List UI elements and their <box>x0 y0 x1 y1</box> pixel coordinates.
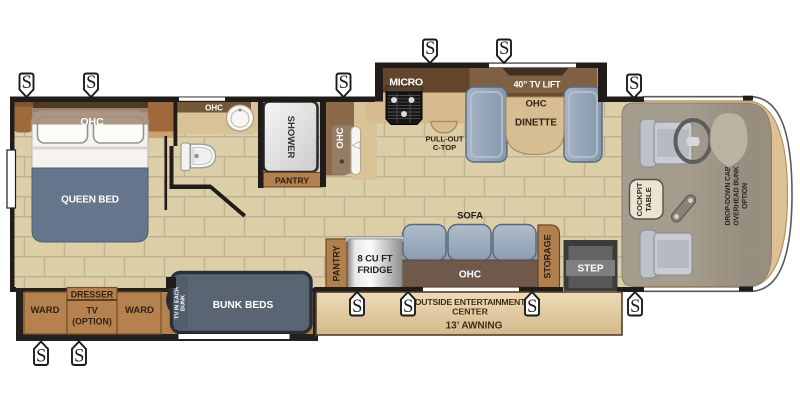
svg-text:SOFA: SOFA <box>457 211 483 222</box>
svg-text:PANTRY: PANTRY <box>275 176 309 186</box>
svg-text:OHC: OHC <box>80 116 104 128</box>
svg-text:(OPTION): (OPTION) <box>72 317 112 327</box>
svg-text:WARD: WARD <box>30 305 59 316</box>
svg-text:COCKPIT: COCKPIT <box>635 182 644 216</box>
svg-text:40” TV LIFT: 40” TV LIFT <box>514 80 562 90</box>
svg-text:BUNK: BUNK <box>181 295 187 311</box>
svg-text:DROP-DOWN CAB: DROP-DOWN CAB <box>725 166 732 225</box>
svg-text:OPTION: OPTION <box>742 183 749 209</box>
svg-text:OVERHEAD BUNK: OVERHEAD BUNK <box>734 166 741 225</box>
svg-text:OHC: OHC <box>459 270 481 281</box>
svg-text:STORAGE: STORAGE <box>543 234 553 278</box>
svg-text:FRIDGE: FRIDGE <box>357 265 392 275</box>
svg-text:DINETTE: DINETTE <box>515 118 557 129</box>
svg-text:C-TOP: C-TOP <box>433 143 456 152</box>
svg-text:OUTSIDE ENTERTAINMENT: OUTSIDE ENTERTAINMENT <box>415 297 526 307</box>
svg-text:TV: TV <box>86 306 97 316</box>
svg-text:QUEEN BED: QUEEN BED <box>61 195 119 206</box>
svg-text:DRESSER: DRESSER <box>71 290 114 300</box>
svg-text:SHOWER: SHOWER <box>285 116 296 159</box>
svg-text:BUNK BEDS: BUNK BEDS <box>213 300 274 311</box>
svg-text:OHC: OHC <box>335 127 346 148</box>
svg-text:STEP: STEP <box>577 264 603 275</box>
svg-text:13’ AWNING: 13’ AWNING <box>446 321 503 332</box>
svg-text:WARD: WARD <box>125 305 154 316</box>
svg-text:TABLE: TABLE <box>644 187 653 211</box>
svg-text:PANTRY: PANTRY <box>332 246 342 282</box>
svg-text:OHC: OHC <box>525 99 546 110</box>
svg-text:CENTER: CENTER <box>452 307 488 317</box>
svg-text:8 CU FT: 8 CU FT <box>357 254 392 264</box>
svg-text:OHC: OHC <box>205 104 223 113</box>
